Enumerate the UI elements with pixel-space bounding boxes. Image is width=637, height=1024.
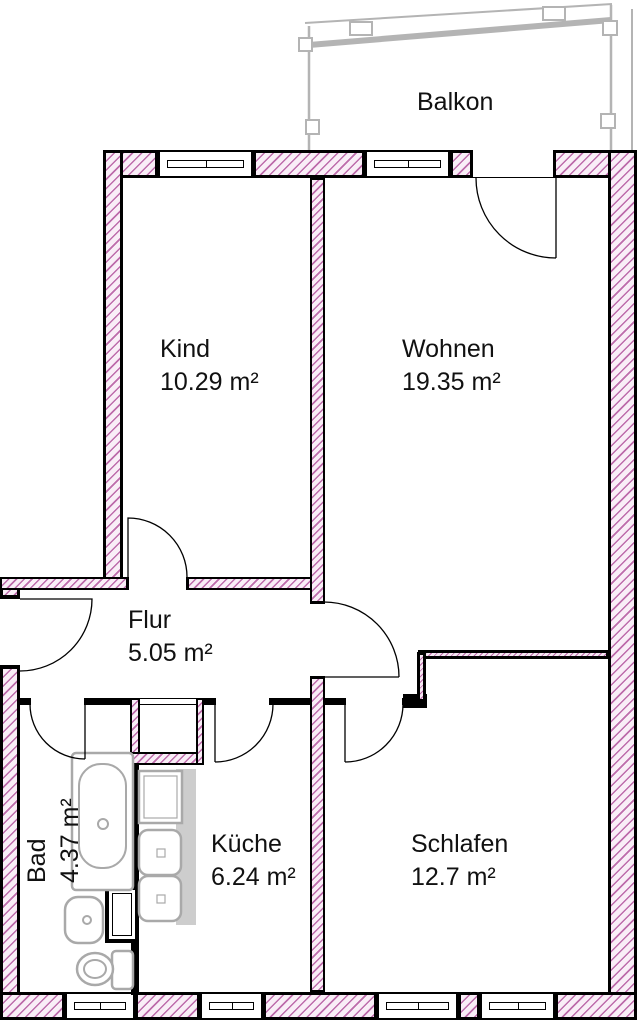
room-name: Küche: [211, 828, 296, 861]
duct-shaft-inner: [112, 893, 132, 936]
wall-segment: [458, 992, 480, 1020]
wall-segment: [325, 698, 345, 705]
room-label-schlafen: Schlafen 12.7 m²: [411, 828, 508, 894]
room-area: 6.24 m²: [211, 861, 296, 894]
bad-door-opening: [30, 698, 85, 705]
balcony-door-opening: [473, 150, 553, 178]
wall-segment: [0, 577, 128, 590]
room-name: Schlafen: [411, 828, 508, 861]
wall-segment: [418, 650, 609, 659]
schlafen-door-swing: [345, 704, 403, 762]
window-mullion: [408, 160, 409, 168]
room-name: Kind: [160, 333, 259, 366]
room-area: 5.05 m²: [128, 637, 213, 670]
room-area: 12.7 m²: [411, 861, 508, 894]
entry-door-opening: [0, 598, 20, 666]
kueche-door-opening: [215, 698, 270, 705]
balcony-door-swing: [476, 178, 556, 258]
kueche-door-swing: [215, 704, 273, 762]
room-area: 4.37 m²: [54, 787, 87, 883]
niche-wall: [196, 698, 204, 765]
window-mullion: [232, 1002, 233, 1010]
room-name: Wohnen: [402, 333, 501, 366]
room-label-kind: Kind 10.29 m²: [160, 333, 259, 399]
kitchen-counter: [176, 769, 196, 925]
wall-segment: [310, 677, 325, 992]
kind-door-swing: [128, 518, 187, 577]
niche-opening: [140, 698, 196, 705]
room-name: Balkon: [417, 86, 493, 119]
wall-segment: [417, 652, 426, 702]
window: [480, 992, 555, 1020]
wall-segment: [20, 698, 30, 705]
room-label-wohnen: Wohnen 19.35 m²: [402, 333, 501, 399]
room-label-balkon: Balkon: [417, 86, 493, 119]
kind-door-opening: [128, 577, 187, 590]
wall-segment: [187, 577, 325, 590]
room-area: 19.35 m²: [402, 366, 501, 399]
window-mullion: [100, 1002, 101, 1010]
wohnen-door-opening: [310, 603, 325, 677]
schlafen-door-opening: [345, 698, 403, 705]
room-label-kueche: Küche 6.24 m²: [211, 828, 296, 894]
wall-segment: [310, 178, 325, 603]
window: [377, 992, 458, 1020]
window: [365, 150, 450, 178]
window: [158, 150, 253, 178]
entry-door-swing: [20, 599, 92, 671]
window: [200, 992, 263, 1020]
wall-segment: [450, 150, 473, 178]
bad-door-swing: [30, 704, 85, 759]
room-name: Bad: [21, 787, 54, 883]
balcony-railing: [299, 4, 632, 150]
kitchen-sink: [139, 830, 181, 921]
floor-plan: Balkon Kind 10.29 m² Wohnen 19.35 m² Flu…: [0, 0, 637, 1024]
duct-shaft: [105, 886, 139, 943]
wall-segment: [103, 150, 123, 590]
wall-segment: [203, 698, 215, 705]
wall-segment: [253, 150, 365, 178]
room-label-bad: Bad 4.37 m²: [21, 787, 79, 883]
toilet: [77, 951, 133, 989]
window: [65, 992, 135, 1020]
window-mullion: [418, 1002, 419, 1010]
wall-segment: [85, 698, 130, 705]
wall-segment: [131, 763, 139, 995]
wall-segment: [608, 150, 637, 1020]
window-mullion: [206, 160, 207, 168]
wall-segment: [555, 992, 637, 1020]
wall-segment: [0, 992, 65, 1020]
room-label-flur: Flur 5.05 m²: [128, 604, 213, 670]
wall-segment: [270, 698, 310, 705]
kitchen-stove: [139, 771, 182, 823]
niche-wall: [130, 752, 203, 765]
wohnen-door-swing: [324, 602, 399, 677]
washbasin: [65, 897, 103, 943]
wall-segment: [263, 992, 377, 1020]
room-name: Flur: [128, 604, 213, 637]
wall-segment: [0, 666, 20, 1020]
room-area: 10.29 m²: [160, 366, 259, 399]
window-mullion: [518, 1002, 519, 1010]
wall-segment: [135, 992, 200, 1020]
